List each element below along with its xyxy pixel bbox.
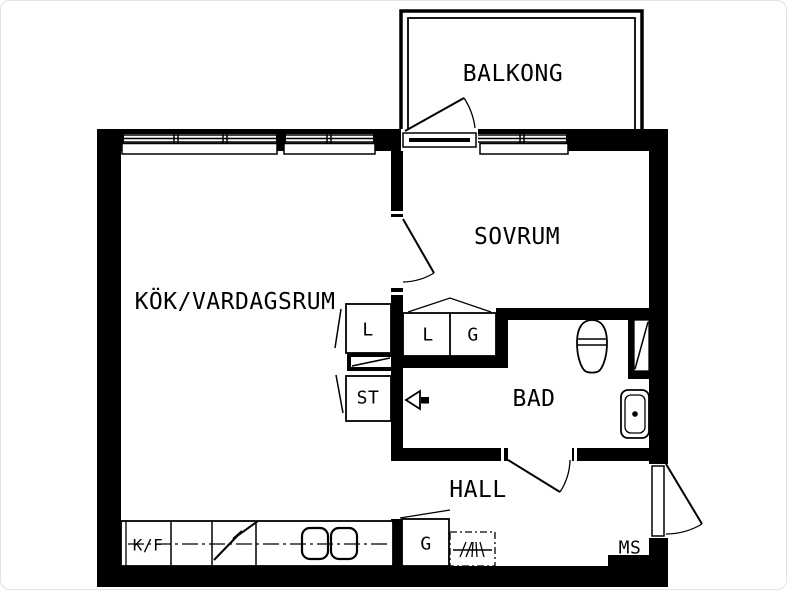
toilet-icon bbox=[577, 320, 607, 373]
entry-door bbox=[649, 464, 702, 538]
room-label-bedroom: SOVRUM bbox=[474, 224, 560, 250]
closet-lg-bedroom bbox=[403, 298, 496, 356]
label-closet-linen-kitchen: L bbox=[362, 320, 373, 341]
closet-door-arc bbox=[408, 298, 491, 312]
bedroom-door bbox=[403, 219, 434, 282]
window-bedroom bbox=[478, 134, 568, 154]
bathroom-door bbox=[508, 460, 570, 492]
closet-shelf bbox=[347, 353, 403, 371]
window-left bbox=[122, 134, 277, 154]
room-label-kitchen-living: KÖK/VARDAGSRUM bbox=[135, 289, 336, 315]
closet-door-mark bbox=[335, 309, 341, 348]
window-mid bbox=[284, 134, 375, 154]
vent-arrow-icon bbox=[406, 391, 429, 409]
meter-cabinet-wall bbox=[608, 555, 668, 587]
window-sill bbox=[122, 144, 277, 155]
label-closet-linen-bath: L bbox=[422, 325, 433, 346]
label-meter-cabinet: MS bbox=[619, 538, 642, 559]
interior-walls bbox=[391, 151, 649, 566]
duct-shaft bbox=[634, 320, 649, 371]
balcony-door bbox=[401, 98, 478, 151]
floorplan-canvas: BALKONG SOVRUM KÖK/VARDAGSRUM BAD HALL L… bbox=[0, 0, 787, 590]
label-closet-wardrobe-hall: G bbox=[420, 534, 431, 555]
closet-door-mark bbox=[400, 510, 450, 518]
closet-door-mark bbox=[336, 375, 343, 413]
floorplan-drawing bbox=[1, 1, 787, 590]
coat-rack-icon bbox=[450, 532, 495, 566]
label-closet-cleaning: ST bbox=[357, 388, 380, 409]
label-closet-wardrobe-bath: G bbox=[467, 325, 478, 346]
sink-icon bbox=[621, 390, 649, 438]
window-sill bbox=[284, 144, 375, 155]
label-fridge-freezer: K/F bbox=[133, 536, 163, 555]
window-sill bbox=[480, 144, 568, 155]
room-label-balcony: BALKONG bbox=[463, 61, 563, 87]
room-label-bathroom: BAD bbox=[512, 386, 555, 412]
room-label-hall: HALL bbox=[449, 477, 506, 503]
